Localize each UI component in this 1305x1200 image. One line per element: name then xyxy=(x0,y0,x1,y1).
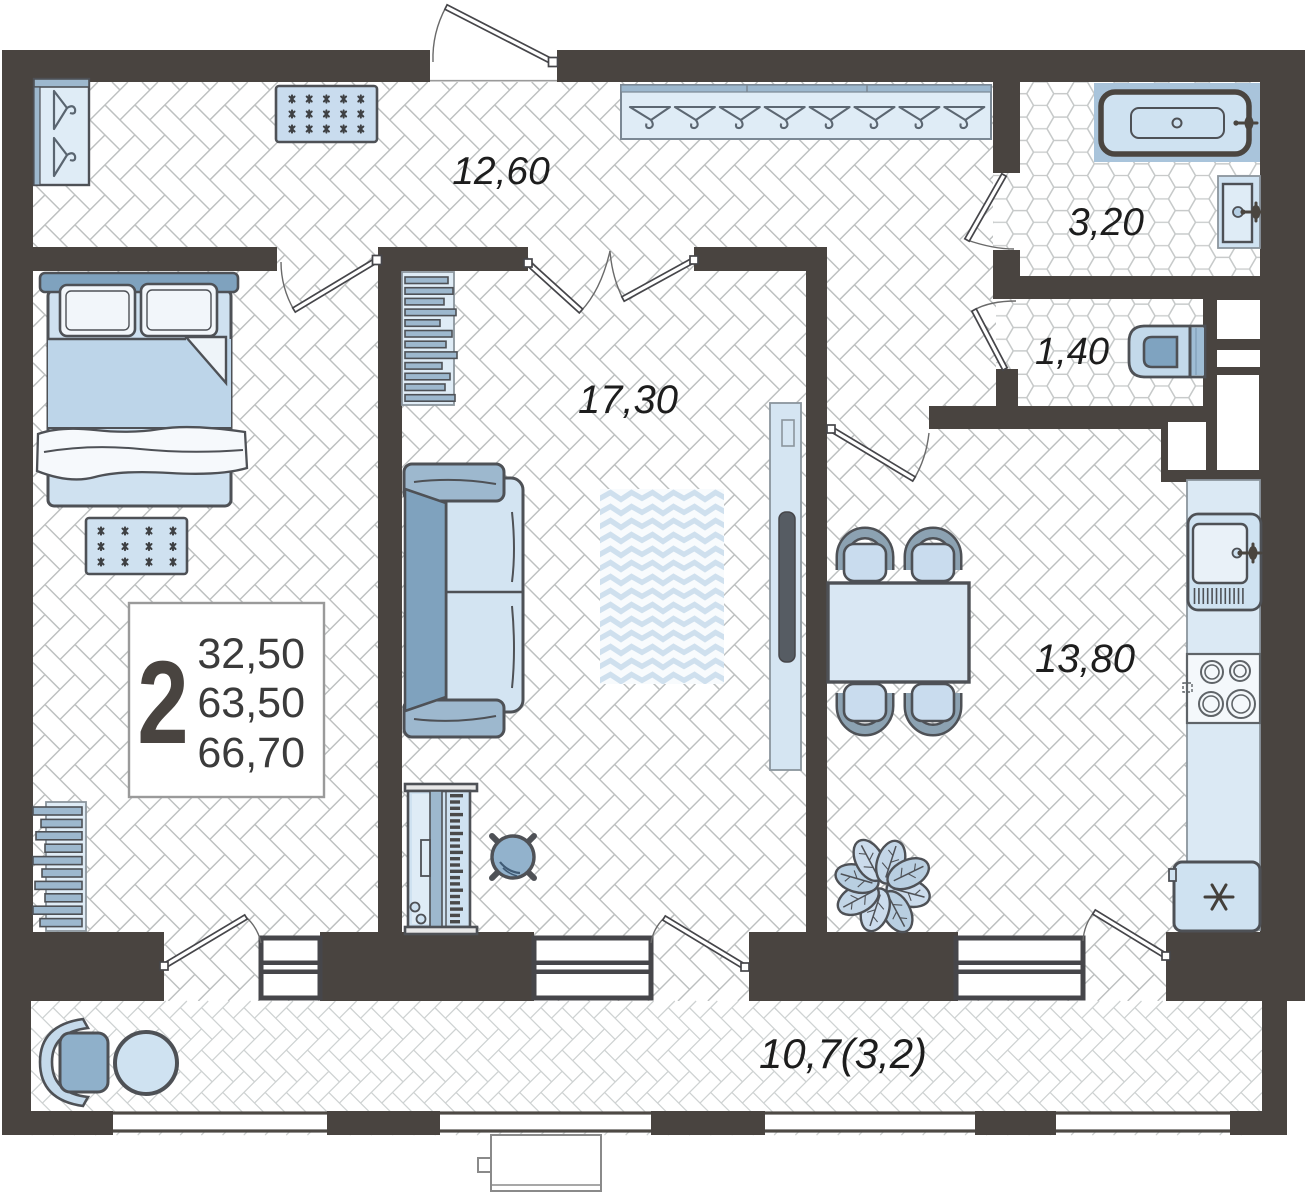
svg-text:10,7(3,2): 10,7(3,2) xyxy=(759,1030,927,1077)
svg-text:3,20: 3,20 xyxy=(1068,201,1144,244)
svg-text:2: 2 xyxy=(137,637,188,769)
svg-text:13,80: 13,80 xyxy=(1035,637,1135,681)
svg-text:32,50: 32,50 xyxy=(197,630,305,678)
svg-text:63,50: 63,50 xyxy=(197,679,305,727)
svg-text:1,40: 1,40 xyxy=(1035,331,1109,373)
svg-text:66,70: 66,70 xyxy=(197,729,305,777)
svg-text:12,60: 12,60 xyxy=(452,150,550,193)
svg-text:17,30: 17,30 xyxy=(578,378,678,422)
